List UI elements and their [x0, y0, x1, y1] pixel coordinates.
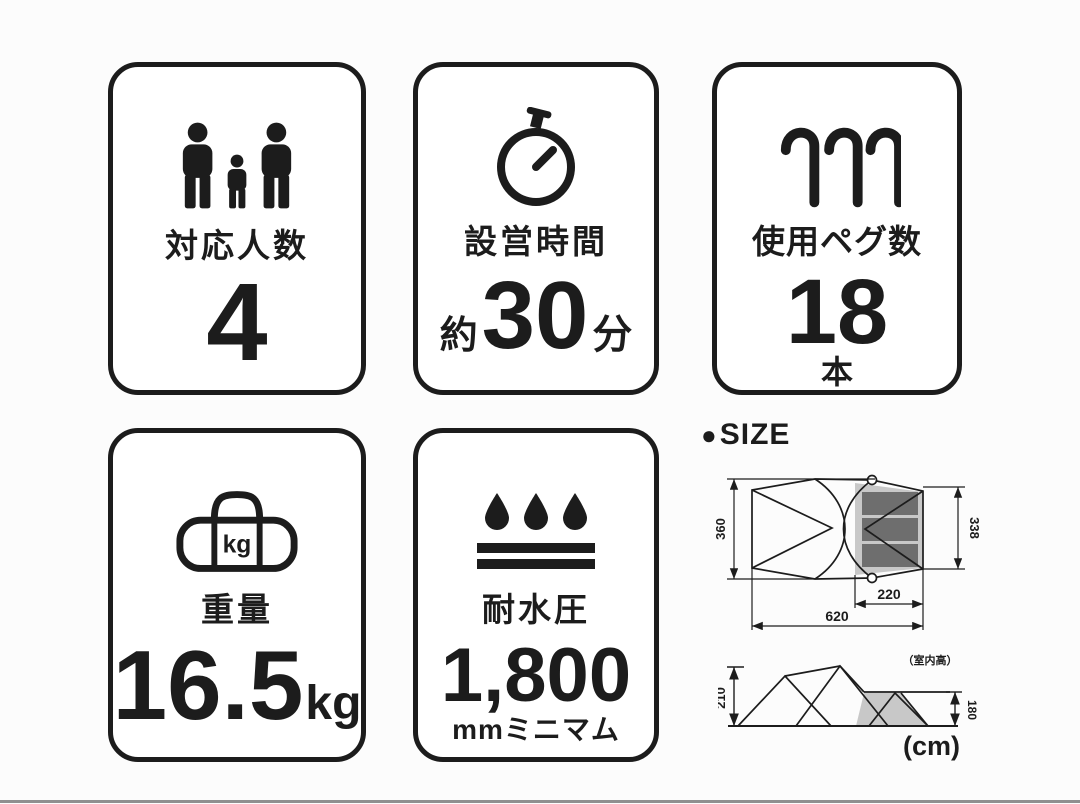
waterproof-value: 1,800 [441, 638, 631, 714]
stopwatch-icon [486, 91, 586, 209]
unit-note: (cm) [903, 731, 960, 762]
bag-kg-badge: kg [223, 532, 252, 559]
waterproof-icon [471, 463, 601, 575]
card-weight: kg 重量 16.5 kg [108, 428, 366, 762]
capacity-value: 4 [206, 268, 267, 378]
interior-height-note: （室内高） [903, 653, 958, 667]
capacity-label: 対応人数 [165, 229, 309, 262]
waterproof-label: 耐水圧 [482, 593, 590, 626]
card-setup-time: 設営時間 約 30 分 [413, 62, 659, 395]
dim-total-width: 620 [825, 608, 849, 624]
pole-joint-top [868, 476, 877, 485]
pegs-unit: 本 [821, 356, 853, 388]
pegs-icon [773, 91, 901, 209]
card-capacity: 対応人数 4 [108, 62, 366, 395]
setup-time-prefix: 約 [440, 317, 478, 355]
pegs-value: 18 [786, 266, 888, 358]
pole-joint-bottom [868, 574, 877, 583]
sleeping-mats [862, 492, 918, 567]
dimension-lines-side [727, 667, 962, 726]
dim-height-left: 210 [718, 687, 728, 709]
bullet-icon: ● [701, 422, 718, 448]
setup-time-label: 設営時間 [464, 225, 608, 258]
size-heading: ● SIZE [701, 420, 790, 450]
weight-number: 16.5 [113, 636, 304, 734]
card-pegs: 使用ペグ数 18 本 [712, 62, 962, 395]
tent-top-view-diagram: 360 338 220 620 [715, 458, 985, 648]
people-icon [173, 93, 301, 211]
dim-height-right: 180 [965, 700, 979, 720]
dim-inner-width: 220 [877, 586, 901, 602]
dim-depth-right: 338 [967, 517, 982, 539]
weight-label: 重量 [201, 593, 273, 626]
weight-value: 16.5 kg [113, 636, 362, 734]
size-heading-text: SIZE [720, 420, 791, 450]
weight-unit: kg [305, 680, 361, 728]
spec-sheet: 対応人数 4 設営時間 約 30 分 [0, 0, 1080, 804]
setup-time-suffix: 分 [592, 315, 632, 355]
dim-depth-left: 360 [715, 518, 728, 540]
card-waterproof: 耐水圧 1,800 mmミニマム [413, 428, 659, 762]
setup-time-value: 約 30 分 [440, 268, 633, 364]
tent-frame-profile [738, 666, 950, 726]
bag-icon: kg [173, 463, 301, 575]
waterproof-unit: mmミニマム [452, 716, 620, 744]
pegs-label: 使用ペグ数 [752, 225, 922, 258]
setup-time-number: 30 [482, 268, 589, 364]
bottom-edge-bar [0, 800, 1080, 803]
